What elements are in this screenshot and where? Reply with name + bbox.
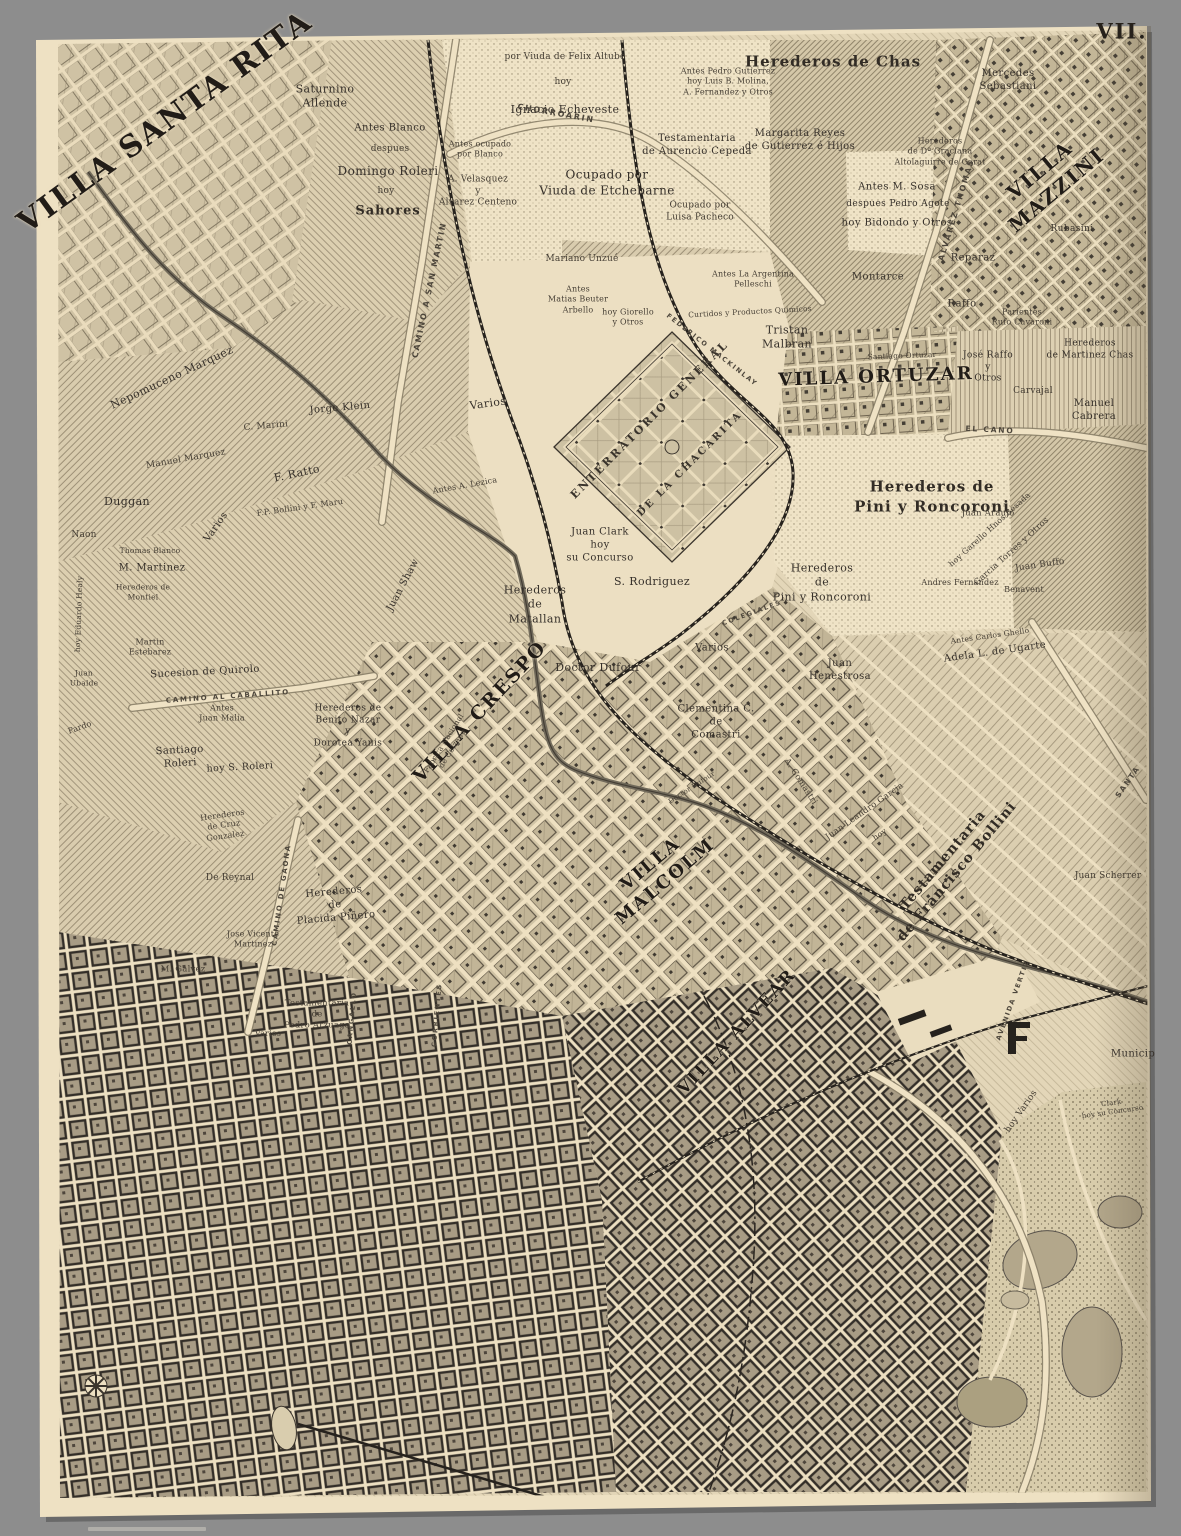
park-lake <box>1001 1291 1029 1309</box>
map-content <box>0 0 1181 1536</box>
plate-number: VII. <box>1096 19 1147 44</box>
plaza-star <box>85 1375 107 1397</box>
paper-edge-shadow <box>1096 26 1151 1502</box>
map-page: VILLA SANTA RITAVILLA MAZZINIVILLA ORTUZ… <box>0 0 1181 1536</box>
map-drawing <box>0 0 1181 1536</box>
footer-caption-smudge <box>88 1527 206 1531</box>
